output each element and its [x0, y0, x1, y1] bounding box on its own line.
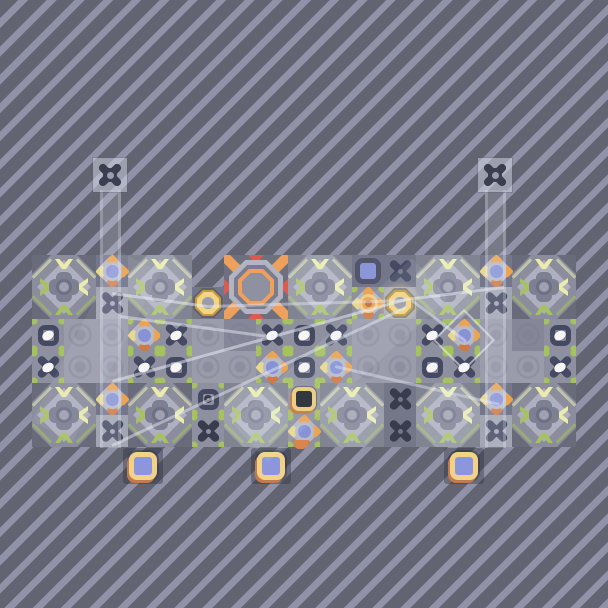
tile-center-dot: [536, 279, 552, 295]
floor-tile: [128, 383, 192, 447]
cell-plain_dark: [512, 319, 544, 351]
tower-beam: [100, 190, 121, 448]
tile-corner-cut: [512, 383, 531, 402]
cell-xcross_dark[interactable]: [384, 415, 416, 447]
pedestal-item[interactable]: [129, 452, 157, 480]
tower-beam: [485, 190, 506, 448]
floor-tile: [512, 383, 576, 447]
cell-plain: [192, 319, 224, 351]
cell-xegg[interactable]: [544, 351, 576, 383]
game-scene: [0, 0, 608, 608]
orange-tab: [294, 440, 308, 449]
x-hub-hole: [398, 429, 403, 434]
cell-xcross_dark[interactable]: [192, 415, 224, 447]
cell-plain: [512, 351, 544, 383]
x-hub-hole: [398, 397, 403, 402]
octagon-center: [242, 273, 270, 301]
tile-center-dot: [536, 407, 552, 423]
cell-eyesocket[interactable]: [32, 319, 64, 351]
cell-eyesocket[interactable]: [544, 319, 576, 351]
floor-tile: [512, 255, 576, 319]
floor-tile: [32, 255, 96, 319]
cell-eyesocket[interactable]: [416, 351, 448, 383]
turret[interactable]: [93, 158, 127, 192]
flower-core: [135, 326, 154, 345]
turret-hub-hole: [107, 172, 114, 179]
turret[interactable]: [478, 158, 512, 192]
x-hub-hole: [206, 429, 211, 434]
cell-xcross_dark[interactable]: [384, 383, 416, 415]
turret-hub-hole: [492, 172, 499, 179]
tile-center-dot: [56, 279, 72, 295]
wash-overlay: [288, 255, 352, 319]
octagon-target[interactable]: [224, 255, 288, 319]
pedestal-item[interactable]: [450, 452, 478, 480]
tile-corner-cut: [128, 383, 147, 402]
tile-corner-cut: [32, 255, 51, 274]
floor-tile: [288, 255, 352, 319]
tile-corner-cut: [512, 255, 531, 274]
